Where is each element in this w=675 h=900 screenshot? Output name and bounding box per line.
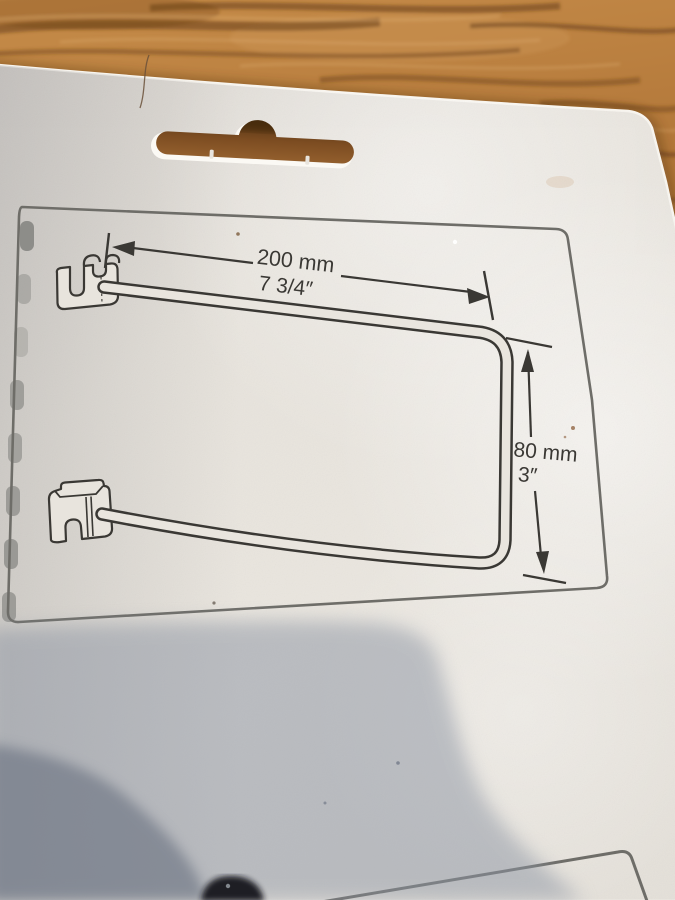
wood-streak <box>0 22 380 30</box>
speck <box>212 601 215 604</box>
photo-of-package-on-table: 200 mm 7 3/4″ 80 mm 3″ <box>0 0 675 900</box>
slot-notch <box>209 150 213 159</box>
height-label-imperial: 3″ <box>517 463 539 488</box>
smudge <box>546 176 574 188</box>
speck <box>236 232 240 236</box>
slat-mark <box>8 433 22 463</box>
slat-mark <box>20 221 34 251</box>
speck <box>571 426 575 430</box>
photo-canvas: 200 mm 7 3/4″ 80 mm 3″ <box>0 0 675 900</box>
slat-mark <box>17 274 31 304</box>
slat-mark <box>6 486 20 516</box>
speck <box>564 436 567 439</box>
slot-notch <box>305 156 309 165</box>
glint-speck <box>453 240 457 244</box>
slat-mark <box>10 380 24 410</box>
wood-streak <box>150 6 560 10</box>
lens-glint <box>226 884 230 888</box>
